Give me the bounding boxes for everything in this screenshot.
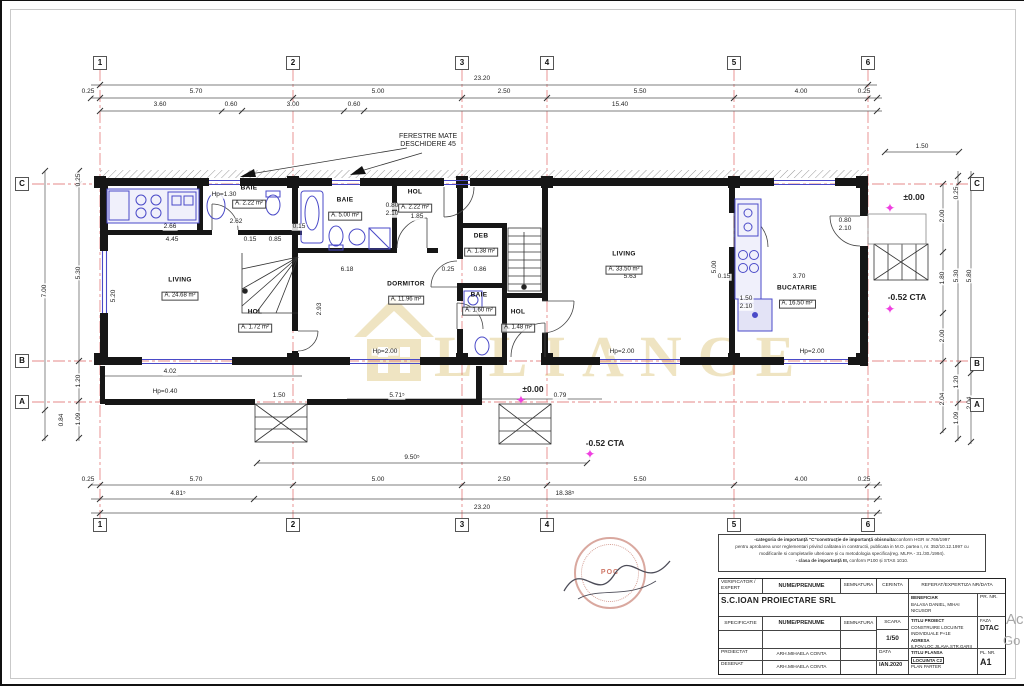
cell-desenat-sign xyxy=(841,661,877,674)
cell-desenat-name: ARH.MIHAELA CONTA xyxy=(763,661,841,674)
grid-axes xyxy=(32,69,968,531)
signature xyxy=(558,547,678,611)
cell-pl-nr: PL. NR. A1 xyxy=(978,649,1005,674)
cell-company: S.C.IOAN PROIECTARE SRL xyxy=(719,594,909,617)
cell-nume-header2: NUME/PRENUME xyxy=(763,617,841,631)
toilet-icon xyxy=(266,195,280,215)
beneficiar-label: BENEFICIAR xyxy=(911,595,938,600)
cell-proiectat-name: ARH.MIHAELA CONTA xyxy=(763,649,841,661)
toilet-icon xyxy=(475,337,489,355)
adresa-label: ADRESA xyxy=(911,638,930,643)
note-line4-bold: - clasa de importanță III, xyxy=(796,558,848,563)
note-line1-rest: conform HGR nr.766/1997 xyxy=(896,537,950,542)
insulation-hatch xyxy=(100,170,868,178)
cell-desenat: DESENAT xyxy=(719,661,763,674)
cell-scara-value: 1/50 xyxy=(877,630,909,649)
bathtub-icon xyxy=(301,191,323,243)
importance-note: -categoria de importanță "C"construcție … xyxy=(718,534,986,572)
cell-nume-header1: NUME/PRENUME xyxy=(763,579,841,594)
corner-mark-1: Ac xyxy=(1006,611,1024,628)
plansa-badge: LOCUINTA C2 xyxy=(911,657,944,664)
cell-data-label: DATA xyxy=(877,649,909,661)
window-note-line2: DESCHIDERE 45 xyxy=(399,141,457,149)
titlu-proiect-label: TITLU PROIECT xyxy=(911,618,944,623)
cell-proiectat: PROIECTAT xyxy=(719,649,763,661)
cell-semnatura-header1: SEMNATURA xyxy=(841,579,877,594)
cell-specificatie: SPECIFICATIE xyxy=(719,617,763,631)
cell-semnatura-header2: SEMNATURA xyxy=(841,617,877,631)
title-block: VERIFICATOR / EXPERT NUME/PRENUME SEMNAT… xyxy=(718,578,1006,675)
cell-beneficiar: BENEFICIAR BALASA DANIEL, MIHAI NICUSOR … xyxy=(909,594,978,617)
titlu-proiect-1: CONSTRUIRE LOCUINTE xyxy=(911,625,963,630)
fixtures xyxy=(107,189,772,355)
faza-label: FAZA xyxy=(980,618,991,623)
cell-referat-header: REFERAT/EXPERTIZA NR/DATA xyxy=(909,579,1005,594)
pl-nr-label: PL. NR. xyxy=(980,650,995,655)
faza-value: DTAC xyxy=(980,625,999,632)
window-note: FERESTRE MATE DESCHIDERE 45 xyxy=(399,133,457,150)
cell-blank2 xyxy=(763,631,841,649)
cell-pr-nr: PR. NR. xyxy=(978,594,1005,617)
window-note-line1: FERESTRE MATE xyxy=(399,133,457,141)
note-line2: pentru aprobarea unor reglementari privi… xyxy=(735,544,968,549)
cell-cerinta-header: CERINTA xyxy=(877,579,909,594)
cell-blank1 xyxy=(719,631,763,649)
note-line3: modificarile si completarile ulterioare … xyxy=(759,551,945,556)
dimension-ticks xyxy=(42,82,974,516)
cell-data-value: IAN.2020 xyxy=(877,661,909,674)
note-line1-bold: -categoria de importanță "C"construcție … xyxy=(754,537,896,542)
cell-titlu-plansa: TITLU PLANSA LOCUINTA C2 PLAN PARTER xyxy=(909,649,978,674)
cell-proiectat-sign xyxy=(841,649,877,661)
pl-nr-value: A1 xyxy=(980,657,992,667)
dimension-lines xyxy=(45,85,971,513)
cell-blank3 xyxy=(841,631,877,649)
corner-mark-2: Go xyxy=(1003,633,1020,648)
titlu-plansa-label: TITLU PLANSA xyxy=(911,650,943,655)
plansa-value: PLAN PARTER xyxy=(911,664,941,669)
beneficiar-name1: BALASA DANIEL, MIHAI NICUSOR xyxy=(911,602,960,614)
cell-faza: FAZA DTAC xyxy=(978,617,1005,649)
titlu-proiect-2: INDIVIDUALE P+1E xyxy=(911,631,951,636)
note-line4-rest: conform P100 și STAS 1010. xyxy=(848,558,908,563)
kitchen-counter-left xyxy=(107,189,199,223)
washbasin-icon xyxy=(349,229,365,245)
toilet-icon xyxy=(329,226,343,246)
kitchen-counter-right xyxy=(735,199,761,299)
cell-verificator: VERIFICATOR / EXPERT xyxy=(719,579,763,594)
washing-machine-icon xyxy=(464,291,482,309)
cell-scara-label: SCARA xyxy=(877,617,909,630)
drawing-sheet: LLIANCE xyxy=(0,0,1024,686)
stairs xyxy=(242,228,541,313)
cell-titlu-proiect: TITLU PROIECT CONSTRUIRE LOCUINTE INDIVI… xyxy=(909,617,978,649)
